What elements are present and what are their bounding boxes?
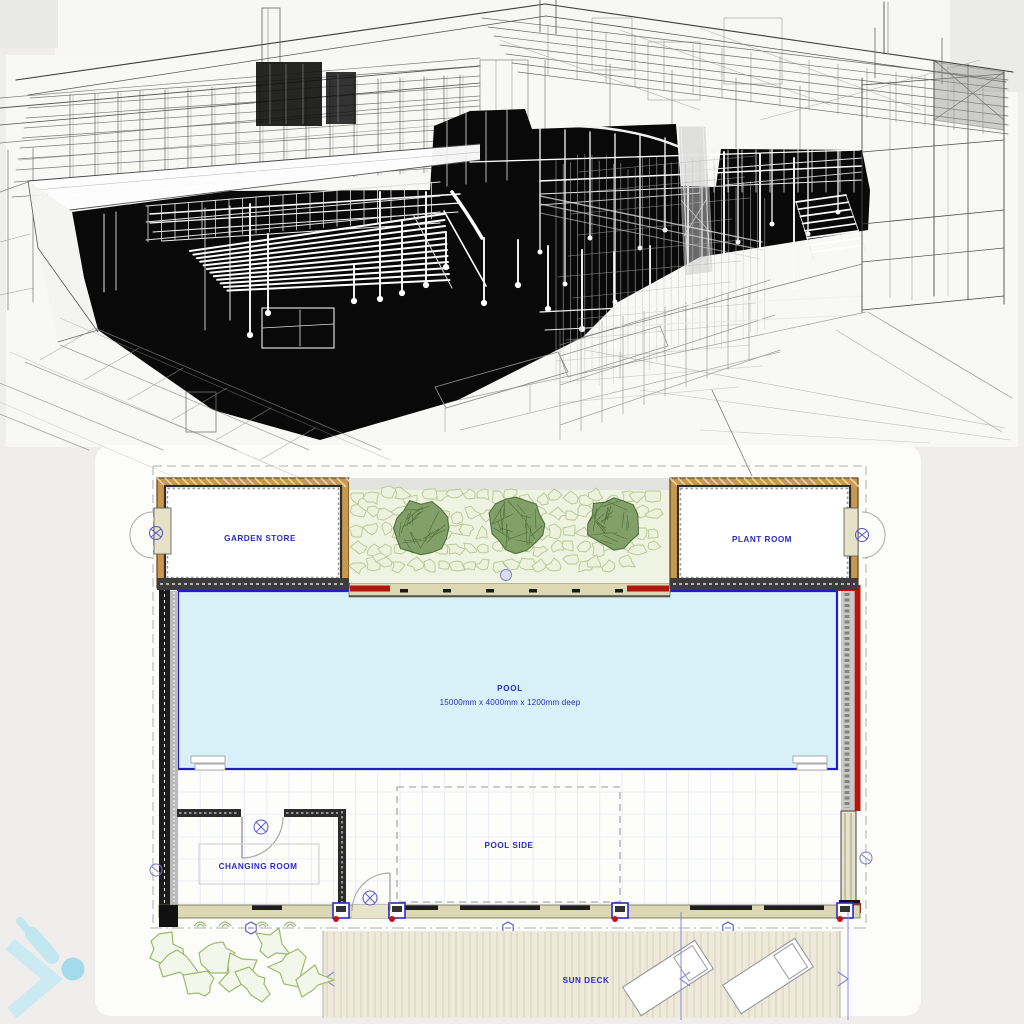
svg-text:SUN DECK: SUN DECK	[563, 976, 610, 985]
svg-text:CHANGING ROOM: CHANGING ROOM	[219, 862, 298, 871]
svg-text:PLANT ROOM: PLANT ROOM	[732, 535, 792, 544]
svg-text:GARDEN STORE: GARDEN STORE	[224, 534, 296, 543]
svg-text:POOL: POOL	[497, 684, 523, 693]
svg-text:15000mm x 4000mm x 1200mm deep: 15000mm x 4000mm x 1200mm deep	[440, 698, 581, 707]
svg-text:POOL SIDE: POOL SIDE	[485, 841, 534, 850]
